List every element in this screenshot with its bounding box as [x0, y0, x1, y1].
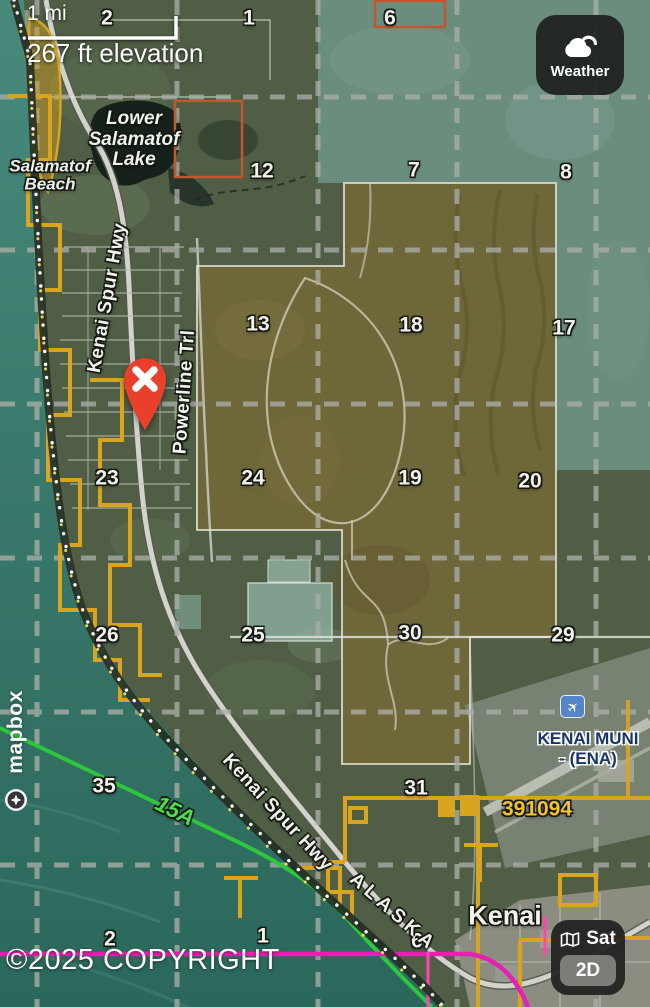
- section-number: 8: [560, 162, 572, 185]
- section-number: 7: [408, 160, 420, 183]
- city-label: Kenai: [468, 901, 542, 930]
- parcel-number-label: 391094: [502, 799, 572, 822]
- airplane-icon: ✈: [563, 697, 581, 715]
- satellite-toggle[interactable]: Sat: [560, 928, 616, 950]
- lake-label: Lower Salamatof Lake: [78, 109, 190, 171]
- mode-2d-button[interactable]: 2D: [560, 955, 616, 986]
- mode-2d-label: 2D: [576, 960, 600, 982]
- copyright-label: ©2025 COPYRIGHT: [6, 944, 280, 977]
- section-number: 13: [246, 314, 269, 337]
- airport-icon: ✈: [560, 695, 585, 718]
- section-number: 1: [243, 8, 255, 31]
- section-number: 12: [250, 161, 273, 184]
- section-number: 17: [552, 318, 575, 341]
- section-number: 24: [241, 468, 264, 491]
- section-number: 6: [384, 8, 396, 31]
- section-number: 35: [92, 776, 115, 799]
- section-number: 29: [551, 625, 574, 648]
- section-number: 20: [518, 471, 541, 494]
- airport-name-label: KENAI MUNI: [537, 730, 638, 748]
- beach-label: Salamatof Beach: [6, 158, 94, 195]
- mapbox-logo-icon[interactable]: [4, 788, 28, 812]
- section-number: 18: [399, 315, 422, 338]
- section-number: 23: [95, 468, 118, 491]
- map-canvas[interactable]: 2 1 6 12 7 8 13 18 17 23 24 19 20 26 25 …: [0, 0, 650, 1007]
- section-number: 25: [241, 625, 264, 648]
- section-number: 31: [404, 778, 427, 801]
- satellite-toggle-label: Sat: [586, 928, 616, 950]
- section-number: 19: [398, 468, 421, 491]
- map-pin-icon[interactable]: [118, 352, 172, 432]
- section-number: 26: [95, 625, 118, 648]
- mapbox-wordmark[interactable]: mapbox: [4, 690, 28, 774]
- folded-map-icon: [560, 932, 580, 947]
- weather-cloud-icon: [561, 30, 599, 60]
- airport-code-label: - (ENA): [559, 750, 617, 768]
- map-style-control[interactable]: Sat 2D: [551, 920, 625, 995]
- weather-button[interactable]: Weather: [536, 15, 624, 95]
- weather-button-label: Weather: [551, 63, 610, 80]
- section-number: 30: [398, 623, 421, 646]
- scale-label: 1 mi: [27, 2, 67, 26]
- elevation-label: 267 ft elevation: [27, 38, 203, 69]
